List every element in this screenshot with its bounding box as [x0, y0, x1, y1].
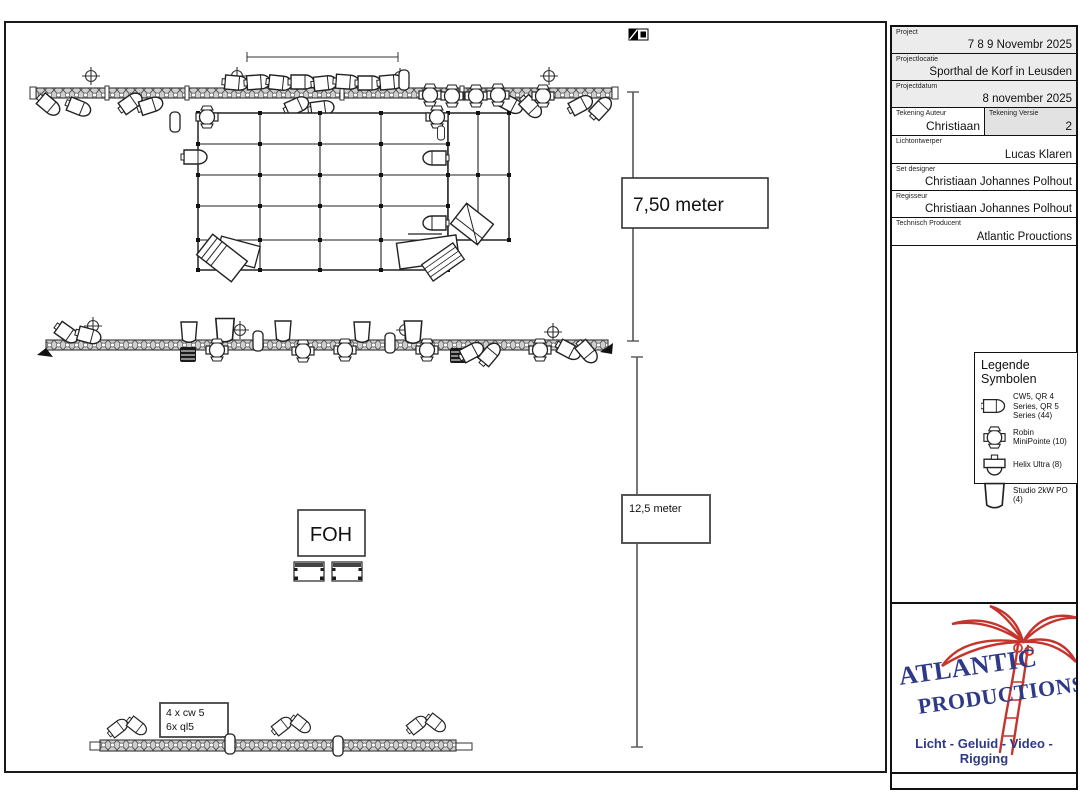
field-value: 8 november 2025 [896, 93, 1072, 105]
helix-ultra-icon [981, 454, 1008, 477]
dimension-width-label: 7,50 meter [633, 195, 724, 216]
legend-item: Studio 2kW PO (4) [981, 481, 1073, 510]
field-label: Projectlocatie [896, 56, 1072, 63]
logo-tagline: Licht - Geluid - Video - Rigging [892, 736, 1076, 766]
legend-item-label: Helix Ultra (8) [1013, 460, 1062, 470]
dimension-depth: 12,5 meter [622, 357, 710, 747]
truss-note-line1: 4 x cw 5 [166, 707, 205, 719]
title-block-row-technisch-producent: Technisch Producent Atlantic Prouctions [892, 218, 1076, 246]
field-value: Christiaan [896, 119, 980, 133]
sheet-marker-icon [629, 29, 648, 40]
company-logo: ATLANTIC PRODUCTIONS Licht - Geluid - Vi… [890, 602, 1078, 774]
legend-item-label: CW5, QR 4 Series, QR 5 Series (44) [1013, 392, 1073, 421]
foh: FOH [294, 510, 365, 581]
field-value: Sporthal de Korf in Leusden [896, 66, 1072, 78]
field-label: Regisseur [896, 193, 1072, 200]
title-block-row-auteur-versie: Tekening Auteur Christiaan Tekening Vers… [892, 108, 1076, 136]
field-label: Set designer [896, 166, 1072, 173]
truss-note-line2: 6x ql5 [166, 721, 194, 733]
field-label: Technisch Producent [896, 220, 1072, 227]
legend: Legende Symbolen CW5, QR 4 Series, QR 5 … [974, 352, 1078, 484]
drawing-sheet: 7,50 meter [0, 0, 1080, 800]
field-label: Tekening Auteur [896, 110, 980, 117]
dimension-depth-label: 12,5 meter [629, 503, 682, 515]
stage-deck [181, 106, 511, 282]
legend-item: Helix Ultra (8) [981, 454, 1073, 477]
foh-label: FOH [310, 524, 352, 546]
title-block-row-projectdatum: Projectdatum 8 november 2025 [892, 81, 1076, 108]
moving-head-icon [981, 425, 1008, 450]
field-label: Lichtontwerper [896, 138, 1072, 145]
par-can-icon [981, 481, 1008, 510]
title-block-row-project: Project 7 8 9 Novembr 2025 [892, 27, 1076, 54]
field-label: Tekening Versie [989, 110, 1072, 117]
title-block-row-set-designer: Set designer Christiaan Johannes Polhout [892, 164, 1076, 191]
legend-item-label: Studio 2kW PO (4) [1013, 486, 1073, 505]
wash-fixture-icon [981, 396, 1008, 416]
tekening-auteur-cell: Tekening Auteur Christiaan [892, 108, 984, 135]
title-block-row-regisseur: Regisseur Christiaan Johannes Polhout [892, 191, 1076, 218]
field-label: Project [896, 29, 1072, 36]
field-value: Atlantic Prouctions [896, 231, 1072, 243]
legend-item: CW5, QR 4 Series, QR 5 Series (44) [981, 392, 1073, 421]
field-label: Projectdatum [896, 83, 1072, 90]
legend-title: Legende Symbolen [981, 358, 1073, 386]
field-value: 7 8 9 Novembr 2025 [896, 39, 1072, 51]
field-value: Christiaan Johannes Polhout [896, 176, 1072, 188]
tekening-versie-cell: Tekening Versie 2 [984, 108, 1076, 135]
truss-note: 4 x cw 5 6x ql5 [160, 703, 228, 737]
middle-truss [37, 317, 613, 369]
drawing-canvas: 7,50 meter [0, 0, 890, 800]
title-block-row-lichtontwerper: Lichtontwerper Lucas Klaren [892, 136, 1076, 164]
top-dimension-line [247, 52, 398, 62]
title-block: Project 7 8 9 Novembr 2025 Projectlocati… [890, 25, 1078, 790]
foh-desk [332, 562, 362, 581]
field-value: Christiaan Johannes Polhout [896, 203, 1072, 215]
field-value: Lucas Klaren [896, 149, 1072, 161]
dimension-width: 7,50 meter [622, 92, 768, 341]
title-block-row-projectlocatie: Projectlocatie Sporthal de Korf in Leusd… [892, 54, 1076, 81]
legend-item-label: Robin MiniPointe (10) [1013, 428, 1073, 447]
legend-item: Robin MiniPointe (10) [981, 425, 1073, 450]
field-value: 2 [989, 119, 1072, 133]
foh-desk [294, 562, 324, 581]
bottom-truss [90, 711, 472, 756]
